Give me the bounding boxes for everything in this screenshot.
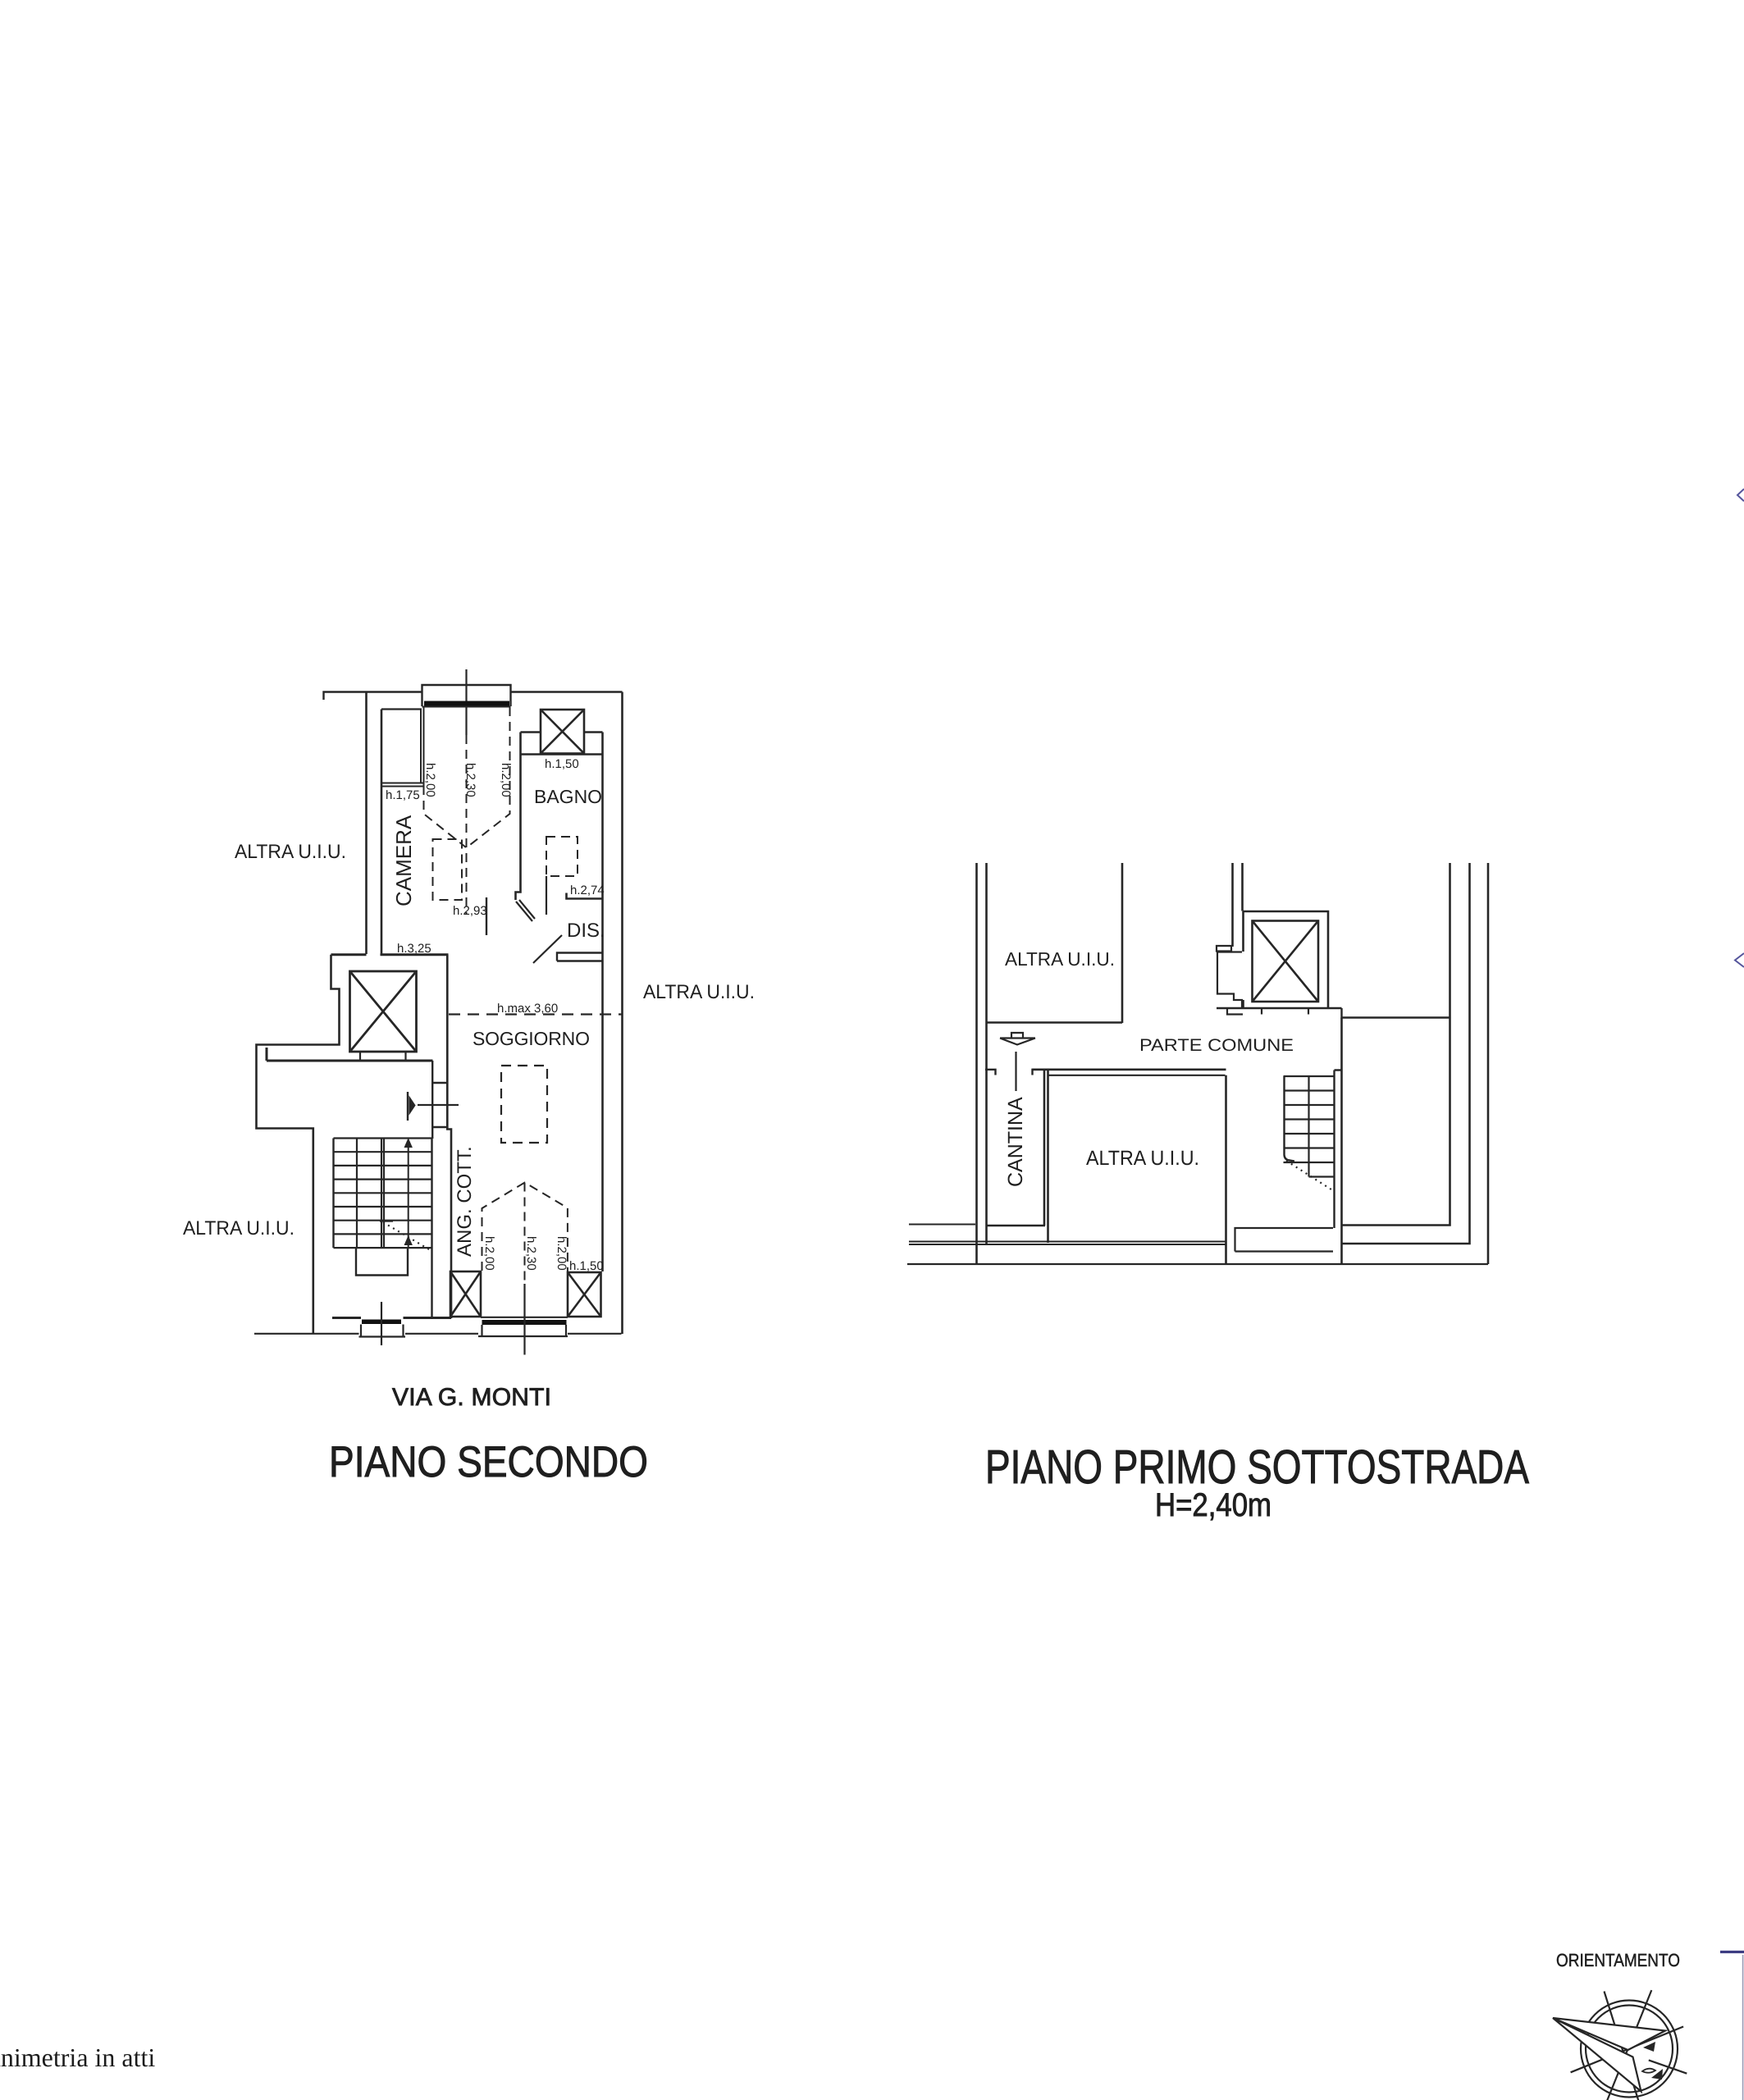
svg-text:h.2,00: h.2,00 <box>555 1236 568 1271</box>
svg-text:h.1,50: h.1,50 <box>569 1259 604 1273</box>
svg-text:CAMERA: CAMERA <box>391 815 416 906</box>
svg-text:h.2,30: h.2,30 <box>524 1236 538 1271</box>
svg-text:CANTINA: CANTINA <box>1004 1097 1027 1187</box>
svg-text:h.3,25: h.3,25 <box>397 942 431 956</box>
svg-text:ALTRA U.I.U.: ALTRA U.I.U. <box>235 841 346 863</box>
svg-text:ALTRA U.I.U.: ALTRA U.I.U. <box>1005 948 1115 970</box>
svg-text:ALTRA U.I.U.: ALTRA U.I.U. <box>183 1217 294 1239</box>
svg-text:h.2,00: h.2,00 <box>423 763 437 797</box>
svg-text:BAGNO: BAGNO <box>534 786 602 807</box>
svg-text:PIANO SECONDO: PIANO SECONDO <box>329 1438 648 1486</box>
svg-text:VIA G. MONTI: VIA G. MONTI <box>392 1384 551 1411</box>
svg-text:h.2,93: h.2,93 <box>453 904 487 918</box>
svg-text:h.2,00: h.2,00 <box>482 1236 496 1271</box>
svg-text:ANG. COTT.: ANG. COTT. <box>454 1146 476 1257</box>
svg-text:h.1,50: h.1,50 <box>545 757 579 771</box>
svg-text:H=2,40m: H=2,40m <box>1155 1487 1271 1523</box>
svg-text:ORIENTAMENTO: ORIENTAMENTO <box>1556 1950 1680 1970</box>
svg-text:SOGGIORNO: SOGGIORNO <box>473 1028 590 1049</box>
svg-text:h.1,75: h.1,75 <box>386 788 420 802</box>
svg-text:ALTRA U.I.U.: ALTRA U.I.U. <box>643 981 755 1003</box>
svg-text:h.max 3,60: h.max 3,60 <box>497 1002 558 1016</box>
svg-text:Planimetria in atti: Planimetria in atti <box>0 2043 155 2072</box>
svg-text:h.2,74: h.2,74 <box>570 883 605 897</box>
svg-text:PIANO PRIMO SOTTOSTRADA: PIANO PRIMO SOTTOSTRADA <box>985 1440 1529 1494</box>
svg-text:h.2,00: h.2,00 <box>499 763 513 797</box>
svg-text:ALTRA U.I.U.: ALTRA U.I.U. <box>1086 1147 1199 1170</box>
svg-text:h.2,30: h.2,30 <box>463 763 477 797</box>
svg-text:PARTE COMUNE: PARTE COMUNE <box>1139 1036 1294 1055</box>
svg-text:DIS.: DIS. <box>567 920 605 942</box>
